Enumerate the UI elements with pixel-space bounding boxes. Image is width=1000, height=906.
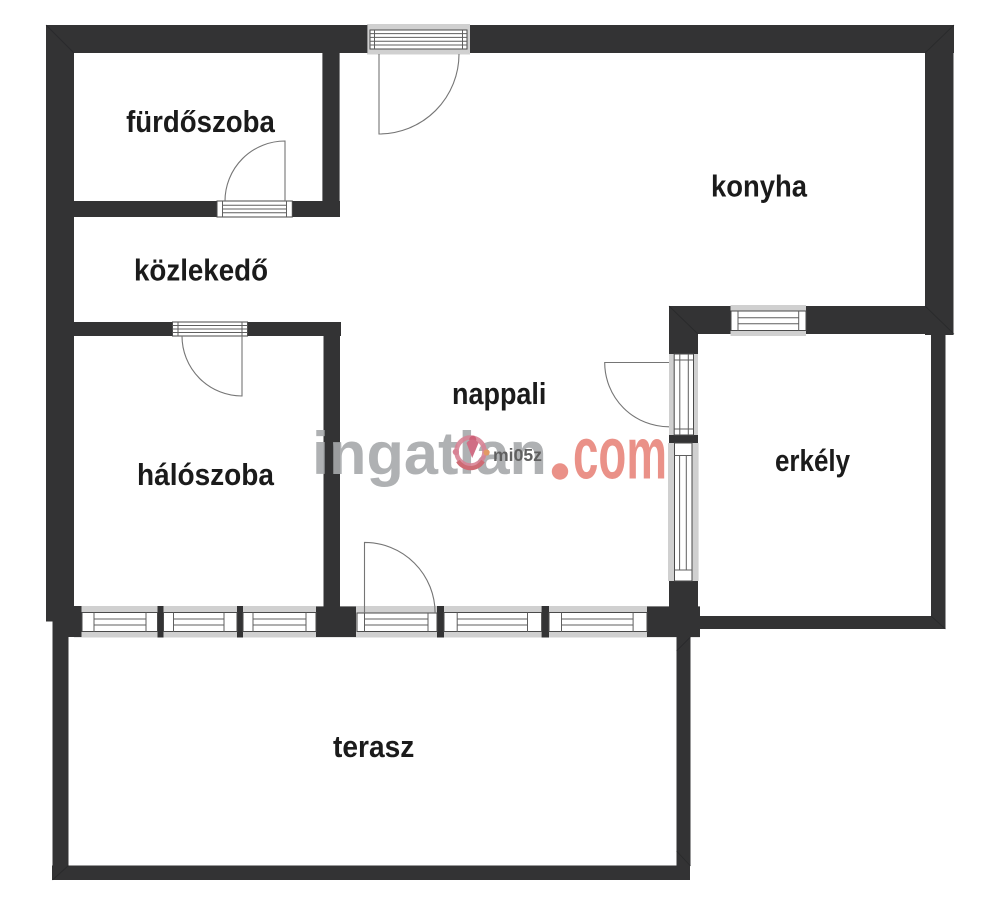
svg-text:erkély: erkély (775, 443, 851, 478)
svg-text:közlekedő: közlekedő (134, 253, 268, 288)
svg-text:com: com (573, 414, 667, 495)
svg-text:fürdőszoba: fürdőszoba (126, 104, 275, 139)
svg-text:terasz: terasz (333, 729, 414, 764)
svg-text:nappali: nappali (452, 376, 546, 411)
svg-text:hálószoba: hálószoba (137, 457, 275, 492)
svg-text:mi05z: mi05z (493, 445, 542, 465)
svg-text:konyha: konyha (711, 169, 808, 204)
